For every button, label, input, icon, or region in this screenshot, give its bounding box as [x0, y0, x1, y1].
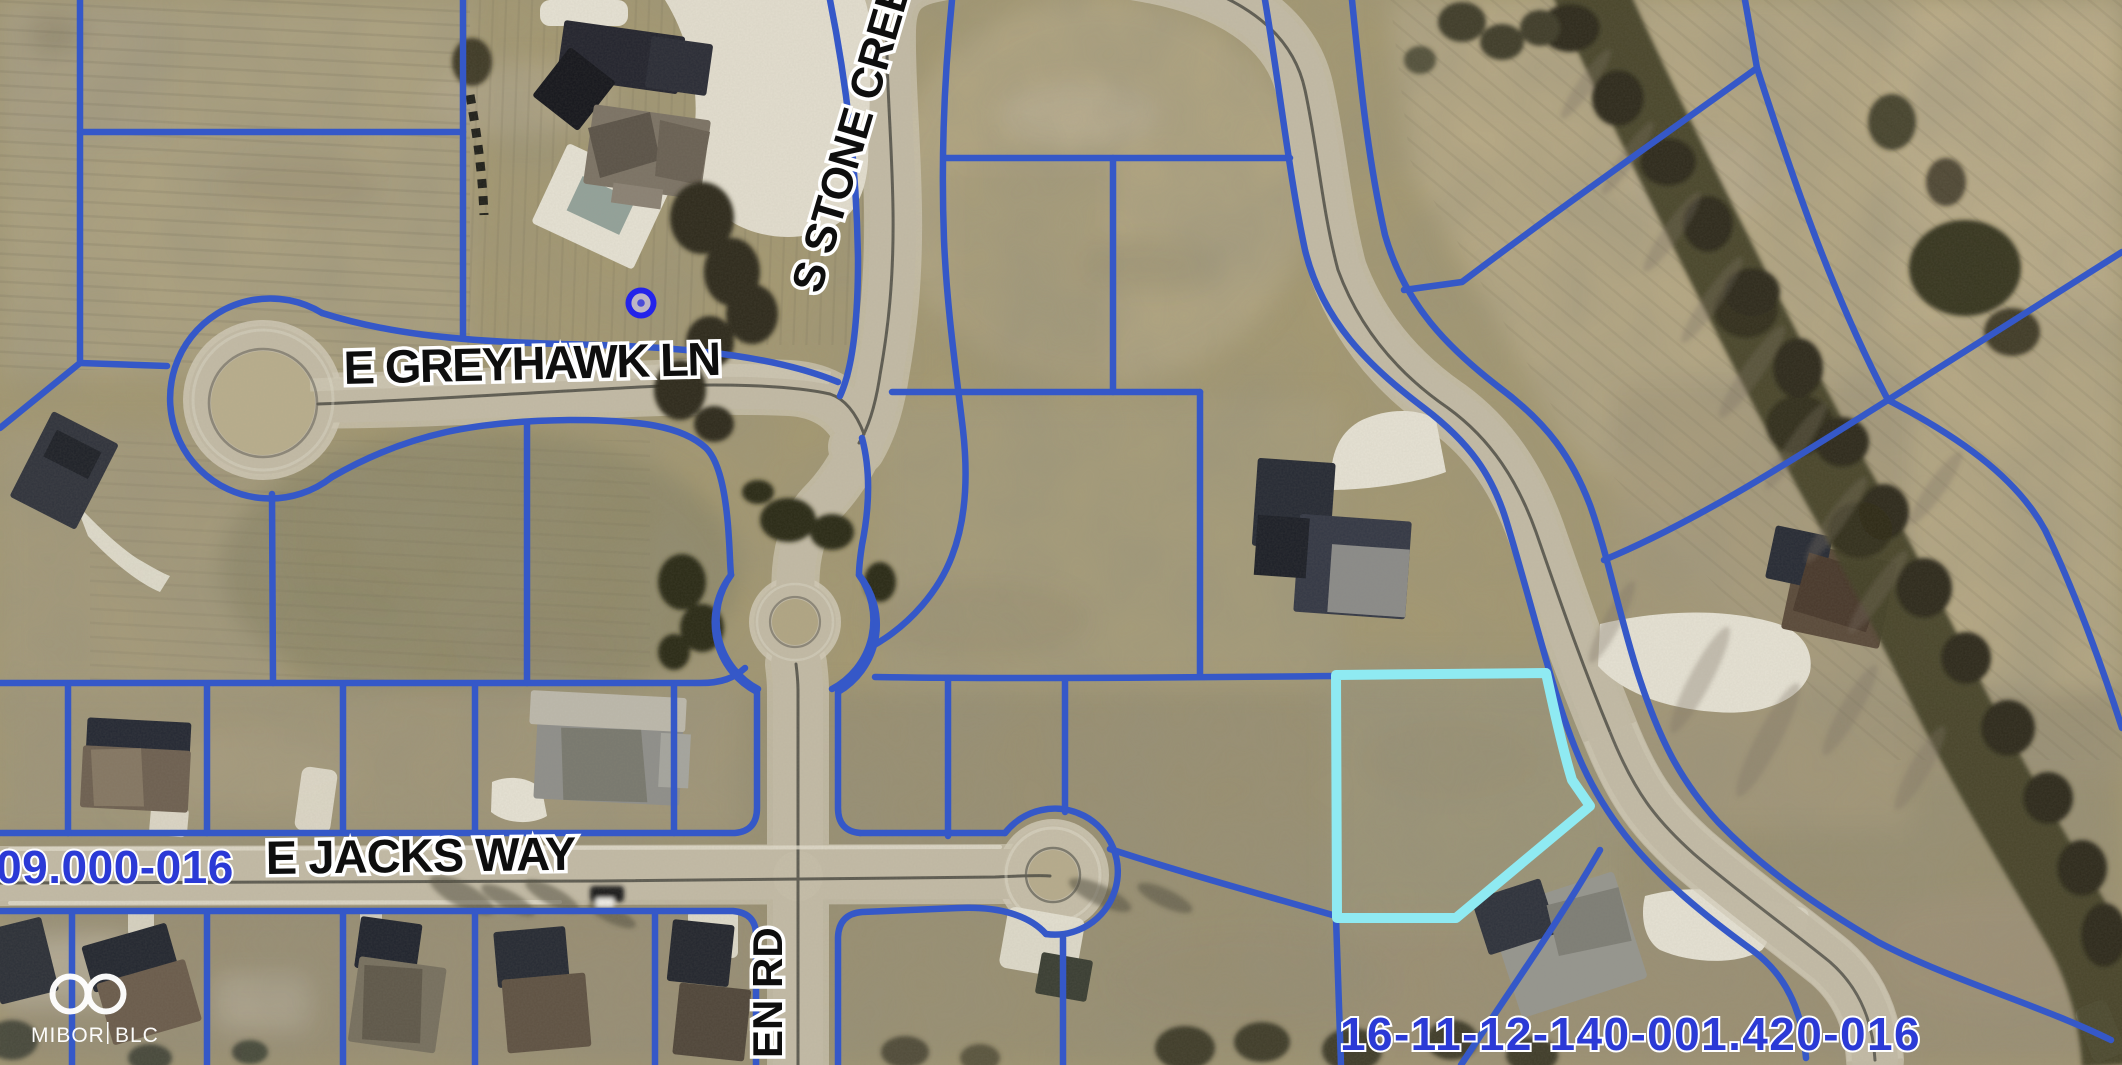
svg-text:009.000-016: 009.000-016: [0, 841, 234, 893]
svg-text:MIBOR: MIBOR: [31, 1024, 105, 1047]
svg-text:EN RD: EN RD: [744, 927, 791, 1058]
svg-text:E JACKS WAY: E JACKS WAY: [265, 827, 576, 884]
svg-text:E GREYHAWK LN: E GREYHAWK LN: [343, 332, 720, 394]
svg-text:BLC: BLC: [115, 1024, 159, 1047]
svg-text:16-11-12-140-001.420-016: 16-11-12-140-001.420-016: [1340, 1008, 1921, 1060]
